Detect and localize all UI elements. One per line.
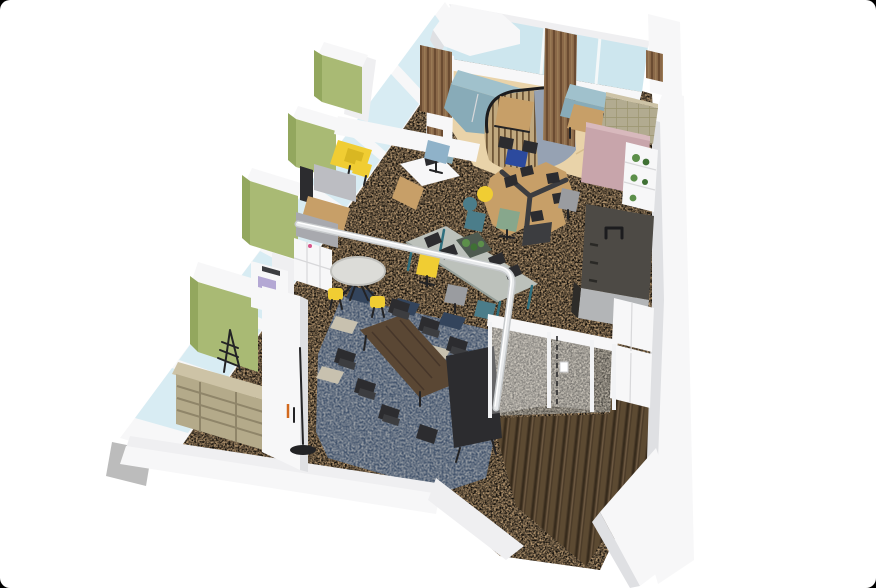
screenshot-page: 3D isometric office floor plan rendering: [0, 0, 876, 588]
round-table-top: [331, 257, 385, 285]
chair-gray-blue: [464, 210, 486, 232]
pouf-yellow: [477, 186, 493, 202]
green-cabinet-1: [314, 42, 368, 114]
east-corner-slat-panel: [646, 50, 663, 82]
kitchen-top: [581, 204, 654, 300]
meeting-west-wall: [262, 286, 300, 470]
floorplan-render: 3D isometric office floor plan rendering: [0, 0, 876, 588]
storage-cabinets-entry: [610, 298, 654, 408]
pouf-teal: [463, 197, 477, 211]
vestibule-door-plate: [560, 362, 568, 372]
plant-shelf: [622, 142, 658, 212]
